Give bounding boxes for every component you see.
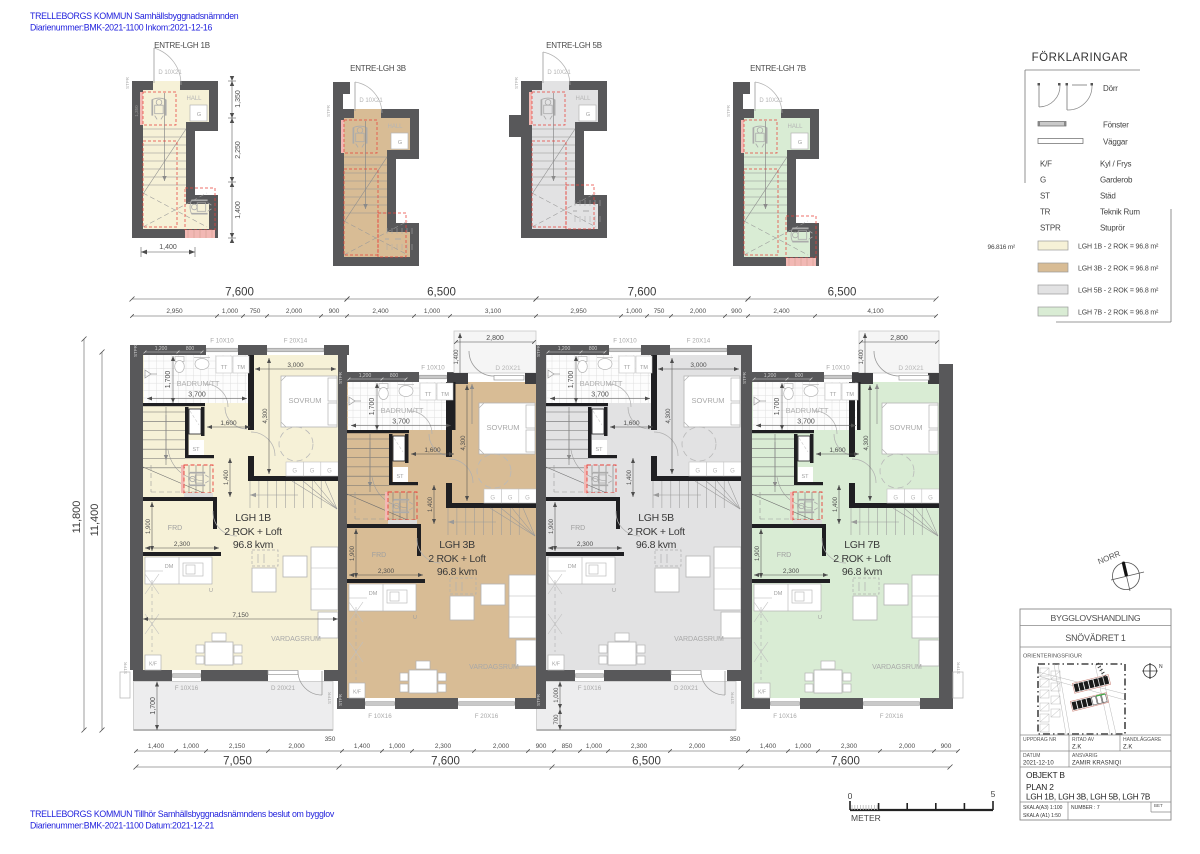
svg-text:Dörr: Dörr xyxy=(1103,84,1118,93)
svg-text:K/F: K/F xyxy=(149,662,157,668)
svg-text:1,700: 1,700 xyxy=(774,398,781,416)
svg-text:HALL: HALL xyxy=(575,96,591,102)
svg-text:D 10X21: D 10X21 xyxy=(359,98,383,104)
svg-text:STPR: STPR xyxy=(536,693,541,706)
svg-text:Väggar: Väggar xyxy=(1103,138,1128,147)
svg-text:STPR: STPR xyxy=(742,371,747,384)
svg-text:VARDAGSRUM: VARDAGSRUM xyxy=(674,636,724,643)
svg-text:ZAMIR KRASNIQI: ZAMIR KRASNIQI xyxy=(1072,761,1121,767)
svg-text:11,400: 11,400 xyxy=(89,504,101,537)
svg-text:FRD: FRD xyxy=(372,552,386,559)
svg-text:2,000: 2,000 xyxy=(286,308,303,315)
svg-text:LGH 3B - 2 ROK = 96.8 m²: LGH 3B - 2 ROK = 96.8 m² xyxy=(1078,266,1159,273)
svg-text:ENTRE-LGH 1B: ENTRE-LGH 1B xyxy=(154,41,210,50)
svg-text:BET: BET xyxy=(1154,803,1163,808)
svg-text:900: 900 xyxy=(329,308,340,315)
svg-text:7,050: 7,050 xyxy=(223,756,252,768)
svg-text:F 10X16: F 10X16 xyxy=(773,713,797,720)
svg-text:1,900: 1,900 xyxy=(350,545,356,561)
svg-text:2,000: 2,000 xyxy=(288,743,305,750)
svg-text:4,300: 4,300 xyxy=(263,408,269,424)
svg-text:96.8 kvm: 96.8 kvm xyxy=(437,566,478,578)
svg-text:G: G xyxy=(911,496,916,502)
svg-text:HALL: HALL xyxy=(186,96,202,102)
svg-text:METER: METER xyxy=(851,813,881,823)
svg-text:1,600: 1,600 xyxy=(829,447,846,454)
svg-text:1,600: 1,600 xyxy=(623,420,640,427)
svg-text:800: 800 xyxy=(795,373,804,379)
svg-text:1,000: 1,000 xyxy=(389,743,406,750)
svg-text:1,200: 1,200 xyxy=(155,346,168,352)
svg-text:1,400: 1,400 xyxy=(454,349,460,365)
svg-text:350: 350 xyxy=(730,736,741,743)
svg-text:1,700: 1,700 xyxy=(568,371,575,389)
svg-text:STPR: STPR xyxy=(956,661,961,674)
svg-text:G: G xyxy=(398,140,402,146)
svg-text:2 ROK + Loft: 2 ROK + Loft xyxy=(428,553,486,565)
svg-text:1,400: 1,400 xyxy=(354,743,371,750)
svg-text:2,000: 2,000 xyxy=(493,743,510,750)
svg-text:3,000: 3,000 xyxy=(690,362,707,369)
svg-text:2,300: 2,300 xyxy=(174,541,191,548)
svg-text:STPR: STPR xyxy=(133,344,138,357)
svg-text:2,300: 2,300 xyxy=(841,743,858,750)
svg-text:SKALA (A1) 1:50: SKALA (A1) 1:50 xyxy=(1023,813,1061,819)
svg-text:1,700: 1,700 xyxy=(369,398,376,416)
svg-text:96.8 kvm: 96.8 kvm xyxy=(233,539,274,551)
svg-text:2021-12-10: 2021-12-10 xyxy=(1023,761,1054,767)
svg-text:1,000: 1,000 xyxy=(586,743,603,750)
svg-text:G: G xyxy=(798,140,802,146)
svg-text:G: G xyxy=(525,496,530,502)
svg-text:D 20X21: D 20X21 xyxy=(495,365,521,372)
svg-text:900: 900 xyxy=(941,743,952,750)
svg-text:U: U xyxy=(209,588,213,594)
svg-text:900: 900 xyxy=(731,308,742,315)
svg-text:D 20X21: D 20X21 xyxy=(898,365,924,372)
svg-text:K/F: K/F xyxy=(758,690,766,696)
svg-text:LGH 1B - 2 ROK = 96.8 m²: LGH 1B - 2 ROK = 96.8 m² xyxy=(1078,244,1159,251)
svg-text:F 20X14: F 20X14 xyxy=(687,338,711,345)
svg-text:ENTRE-LGH 5B: ENTRE-LGH 5B xyxy=(546,41,602,50)
svg-text:2,000: 2,000 xyxy=(690,308,707,315)
svg-text:ENTRE-LGH 3B: ENTRE-LGH 3B xyxy=(350,64,406,73)
svg-text:SOVRUM: SOVRUM xyxy=(890,423,923,432)
svg-text:3,700: 3,700 xyxy=(797,419,815,426)
svg-text:6,500: 6,500 xyxy=(632,756,661,768)
svg-text:D 10X21: D 10X21 xyxy=(759,98,783,104)
svg-text:11,800: 11,800 xyxy=(71,501,83,534)
svg-text:STPR: STPR xyxy=(338,693,343,706)
svg-text:LGH 1B: LGH 1B xyxy=(235,512,271,524)
svg-text:F 10X16: F 10X16 xyxy=(368,713,392,720)
svg-text:2 ROK + Loft: 2 ROK + Loft xyxy=(224,526,282,538)
svg-text:3,000: 3,000 xyxy=(287,362,304,369)
svg-text:DM: DM xyxy=(165,564,174,570)
svg-text:1,400: 1,400 xyxy=(148,743,165,750)
svg-text:G: G xyxy=(928,496,933,502)
svg-text:Kyl / Frys: Kyl / Frys xyxy=(1100,160,1132,169)
svg-text:Teknik Rum: Teknik Rum xyxy=(1100,208,1140,217)
svg-text:2,400: 2,400 xyxy=(372,308,389,315)
svg-text:6,500: 6,500 xyxy=(828,287,857,299)
svg-text:2,250: 2,250 xyxy=(235,141,242,159)
svg-text:ST: ST xyxy=(192,447,200,453)
svg-text:G: G xyxy=(695,469,700,475)
svg-text:G: G xyxy=(1040,176,1046,185)
svg-text:2,950: 2,950 xyxy=(570,308,587,315)
svg-text:Garderob: Garderob xyxy=(1100,176,1133,185)
svg-text:BADRUM/TT: BADRUM/TT xyxy=(381,406,424,415)
svg-text:G: G xyxy=(292,469,297,475)
svg-text:BADRUM/TT: BADRUM/TT xyxy=(786,406,829,415)
svg-text:F 10X16: F 10X16 xyxy=(578,685,602,692)
svg-text:900: 900 xyxy=(536,743,547,750)
svg-text:Diarienummer:BMK-2021-1100 Ink: Diarienummer:BMK-2021-1100 Inkom:2021-12… xyxy=(30,23,212,33)
svg-text:K/F: K/F xyxy=(1040,160,1052,169)
svg-text:ST: ST xyxy=(801,474,809,480)
svg-text:350: 350 xyxy=(325,736,336,743)
svg-text:FRD: FRD xyxy=(168,525,182,532)
svg-text:DM: DM xyxy=(568,564,577,570)
svg-text:LGH 7B: LGH 7B xyxy=(844,539,880,551)
svg-text:DM: DM xyxy=(774,591,783,597)
svg-text:DM: DM xyxy=(369,591,378,597)
svg-text:STPR: STPR xyxy=(726,104,731,117)
svg-text:ANSVARIG: ANSVARIG xyxy=(1072,753,1098,759)
svg-text:BADRUM/TT: BADRUM/TT xyxy=(177,379,220,388)
svg-text:5: 5 xyxy=(991,789,996,799)
svg-text:1,200: 1,200 xyxy=(558,346,571,352)
svg-text:1,000: 1,000 xyxy=(795,743,812,750)
svg-text:Diarienummer:BMK-2021-1100 Dat: Diarienummer:BMK-2021-1100 Datum:2021-12… xyxy=(30,821,214,831)
svg-text:1,400: 1,400 xyxy=(235,201,242,219)
svg-text:ST: ST xyxy=(595,447,603,453)
svg-text:TT: TT xyxy=(624,365,631,371)
svg-text:K/F: K/F xyxy=(552,662,560,668)
svg-text:G: G xyxy=(310,469,315,475)
svg-text:G: G xyxy=(327,469,332,475)
svg-text:1,000: 1,000 xyxy=(183,743,200,750)
svg-text:800: 800 xyxy=(589,346,598,352)
svg-text:4,100: 4,100 xyxy=(867,308,884,315)
svg-text:850: 850 xyxy=(562,743,573,750)
svg-text:HALL: HALL xyxy=(387,124,403,130)
svg-text:TT: TT xyxy=(425,392,432,398)
svg-text:1,700: 1,700 xyxy=(150,697,157,715)
svg-text:ST: ST xyxy=(1040,192,1050,201)
svg-text:TT: TT xyxy=(830,392,837,398)
svg-text:1,000: 1,000 xyxy=(554,687,560,703)
svg-text:800: 800 xyxy=(390,373,399,379)
svg-text:800: 800 xyxy=(186,346,195,352)
svg-text:VARDAGSRUM: VARDAGSRUM xyxy=(872,664,922,671)
svg-text:OBJEKT B: OBJEKT B xyxy=(1026,770,1065,780)
svg-text:4,300: 4,300 xyxy=(666,408,672,424)
svg-text:LGH 1B, LGH 3B, LGH 5B, LGH 7B: LGH 1B, LGH 3B, LGH 5B, LGH 7B xyxy=(1026,793,1151,802)
svg-text:TRELLEBORGS KOMMUN Samhällsbyg: TRELLEBORGS KOMMUN Samhällsbyggnadsnämnd… xyxy=(30,11,239,21)
svg-text:D 20X21: D 20X21 xyxy=(271,685,296,692)
svg-text:VARDAGSRUM: VARDAGSRUM xyxy=(271,636,321,643)
svg-text:7,600: 7,600 xyxy=(431,756,460,768)
svg-text:STPR: STPR xyxy=(338,371,343,384)
svg-text:1,900: 1,900 xyxy=(549,518,555,534)
svg-text:TM: TM xyxy=(846,392,854,398)
svg-text:0: 0 xyxy=(848,791,853,801)
svg-text:1,000: 1,000 xyxy=(222,308,239,315)
svg-text:2 ROK + Loft: 2 ROK + Loft xyxy=(627,526,685,538)
svg-text:SNÖVÄDRET 1: SNÖVÄDRET 1 xyxy=(1065,633,1126,643)
svg-text:1,900: 1,900 xyxy=(146,518,152,534)
svg-text:ST: ST xyxy=(396,474,404,480)
svg-text:2,300: 2,300 xyxy=(783,568,800,575)
svg-text:3,100: 3,100 xyxy=(485,308,502,315)
svg-text:SOVRUM: SOVRUM xyxy=(692,396,725,405)
svg-text:1,400: 1,400 xyxy=(859,349,865,365)
svg-text:2,000: 2,000 xyxy=(689,743,706,750)
svg-text:1,400: 1,400 xyxy=(760,743,777,750)
svg-text:HALL: HALL xyxy=(787,124,803,130)
svg-text:U: U xyxy=(612,588,616,594)
svg-text:FÖRKLARINGAR: FÖRKLARINGAR xyxy=(1032,52,1129,64)
svg-text:U: U xyxy=(413,615,417,621)
svg-text:LGH 5B - 2 ROK = 96.8 m²: LGH 5B - 2 ROK = 96.8 m² xyxy=(1078,288,1159,295)
svg-text:STPR: STPR xyxy=(514,76,519,89)
svg-text:2,300: 2,300 xyxy=(631,743,648,750)
svg-text:G: G xyxy=(586,112,590,118)
svg-text:1,000: 1,000 xyxy=(424,308,441,315)
svg-text:G: G xyxy=(893,496,898,502)
svg-text:4,300: 4,300 xyxy=(461,435,467,451)
svg-text:SOVRUM: SOVRUM xyxy=(289,396,322,405)
svg-text:F 10X10: F 10X10 xyxy=(421,365,445,372)
svg-text:7,600: 7,600 xyxy=(225,287,254,299)
svg-text:LGH 5B: LGH 5B xyxy=(638,512,674,524)
svg-text:STPR: STPR xyxy=(1040,224,1061,233)
svg-text:Städ: Städ xyxy=(1100,192,1116,201)
svg-text:2,400: 2,400 xyxy=(773,308,790,315)
svg-text:1,400: 1,400 xyxy=(159,244,177,251)
svg-text:ORIENTERINGSFIGUR: ORIENTERINGSFIGUR xyxy=(1023,654,1082,660)
svg-text:STPR: STPR xyxy=(326,104,331,117)
svg-text:7,150: 7,150 xyxy=(232,612,249,619)
svg-text:Z.K: Z.K xyxy=(1123,745,1132,751)
svg-text:F 10X10: F 10X10 xyxy=(210,338,234,345)
svg-text:1,600: 1,600 xyxy=(424,447,441,454)
svg-text:K/F: K/F xyxy=(353,690,361,696)
svg-text:1,350: 1,350 xyxy=(235,90,242,108)
svg-text:F 10X10: F 10X10 xyxy=(826,365,850,372)
svg-text:VARDAGSRUM: VARDAGSRUM xyxy=(469,664,519,671)
svg-text:3,700: 3,700 xyxy=(591,392,609,399)
svg-text:NUMBER : 7: NUMBER : 7 xyxy=(1071,805,1100,811)
svg-text:F 20X16: F 20X16 xyxy=(475,713,499,720)
svg-text:F 20X16: F 20X16 xyxy=(880,713,904,720)
svg-text:2,300: 2,300 xyxy=(378,568,395,575)
svg-text:3,700: 3,700 xyxy=(188,392,206,399)
svg-text:FRD: FRD xyxy=(777,552,791,559)
svg-text:D 10X21: D 10X21 xyxy=(158,70,182,76)
svg-text:STPR: STPR xyxy=(123,661,128,674)
svg-text:1,400: 1,400 xyxy=(627,469,633,485)
svg-text:TRELLEBORGS KOMMUN Tillhör Sam: TRELLEBORGS KOMMUN Tillhör Samhällsbyggn… xyxy=(30,809,335,819)
svg-text:2,300: 2,300 xyxy=(435,743,452,750)
svg-text:96.8 kvm: 96.8 kvm xyxy=(636,539,677,551)
svg-text:1,200: 1,200 xyxy=(359,373,372,379)
svg-text:96.8 kvm: 96.8 kvm xyxy=(842,566,883,578)
svg-text:2,800: 2,800 xyxy=(890,335,908,342)
svg-text:G: G xyxy=(508,496,513,502)
svg-text:G: G xyxy=(730,469,735,475)
svg-text:STPR: STPR xyxy=(730,691,735,704)
svg-text:4,300: 4,300 xyxy=(864,435,870,451)
svg-text:F 20X14: F 20X14 xyxy=(284,338,308,345)
svg-text:Fönster: Fönster xyxy=(1103,121,1129,130)
svg-text:2,150: 2,150 xyxy=(229,743,246,750)
svg-text:2,000: 2,000 xyxy=(899,743,916,750)
svg-text:D 20X21: D 20X21 xyxy=(674,685,699,692)
svg-text:Stuprör: Stuprör xyxy=(1100,224,1125,233)
svg-text:FRD: FRD xyxy=(571,525,585,532)
svg-text:6,500: 6,500 xyxy=(427,287,456,299)
svg-text:1,000: 1,000 xyxy=(626,308,643,315)
svg-text:TM: TM xyxy=(441,392,449,398)
svg-text:1,700: 1,700 xyxy=(165,371,172,389)
svg-text:1,600: 1,600 xyxy=(220,420,237,427)
svg-text:HANDLÄGGARE: HANDLÄGGARE xyxy=(1123,736,1162,743)
svg-text:1,400: 1,400 xyxy=(833,496,839,512)
svg-text:TM: TM xyxy=(640,365,648,371)
svg-text:1,900: 1,900 xyxy=(755,545,761,561)
svg-text:G: G xyxy=(713,469,718,475)
svg-text:STPR: STPR xyxy=(327,691,332,704)
svg-text:F 10X16: F 10X16 xyxy=(175,685,199,692)
svg-text:STPR: STPR xyxy=(536,344,541,357)
svg-text:1,400: 1,400 xyxy=(428,496,434,512)
svg-text:TR: TR xyxy=(1040,208,1051,217)
svg-text:G: G xyxy=(197,112,201,118)
svg-text:BADRUM/TT: BADRUM/TT xyxy=(580,379,623,388)
svg-text:BYGGLOVSHANDLING: BYGGLOVSHANDLING xyxy=(1051,613,1141,623)
svg-text:7,600: 7,600 xyxy=(831,756,860,768)
svg-text:750: 750 xyxy=(250,308,261,315)
svg-text:3,700: 3,700 xyxy=(392,419,410,426)
svg-text:1,200: 1,200 xyxy=(764,373,777,379)
svg-text:2 ROK + Loft: 2 ROK + Loft xyxy=(833,553,891,565)
svg-text:ENTRE-LGH 7B: ENTRE-LGH 7B xyxy=(750,64,806,73)
svg-text:TM: TM xyxy=(237,365,245,371)
svg-text:LGH 3B: LGH 3B xyxy=(439,539,475,551)
svg-text:G: G xyxy=(490,496,495,502)
svg-text:LGH 7B - 2 ROK = 96.8 m²: LGH 7B - 2 ROK = 96.8 m² xyxy=(1078,310,1159,317)
svg-text:7,600: 7,600 xyxy=(628,287,657,299)
svg-text:U: U xyxy=(818,615,822,621)
svg-text:D 10X21: D 10X21 xyxy=(547,70,571,76)
svg-text:700: 700 xyxy=(554,714,560,725)
svg-text:750: 750 xyxy=(654,308,665,315)
svg-text:SOVRUM: SOVRUM xyxy=(487,423,520,432)
svg-text:1,400: 1,400 xyxy=(224,469,230,485)
svg-text:F 10X10: F 10X10 xyxy=(613,338,637,345)
svg-text:Z.K: Z.K xyxy=(1072,745,1081,751)
svg-text:TT: TT xyxy=(221,365,228,371)
svg-text:RITAD AV: RITAD AV xyxy=(1072,737,1095,743)
svg-text:2,800: 2,800 xyxy=(486,335,504,342)
svg-text:N: N xyxy=(1159,664,1163,670)
svg-text:96.816 m²: 96.816 m² xyxy=(988,244,1017,251)
svg-text:PLAN 2: PLAN 2 xyxy=(1026,782,1054,792)
svg-text:DATUM: DATUM xyxy=(1023,753,1040,759)
svg-text:UPPDRAG NR: UPPDRAG NR xyxy=(1023,737,1057,743)
svg-text:2,950: 2,950 xyxy=(166,308,183,315)
svg-text:SKALA(A3) 1:100: SKALA(A3) 1:100 xyxy=(1023,805,1063,811)
svg-text:1,350: 1,350 xyxy=(134,105,139,117)
svg-text:STPR: STPR xyxy=(125,76,130,89)
svg-text:2,300: 2,300 xyxy=(577,541,594,548)
